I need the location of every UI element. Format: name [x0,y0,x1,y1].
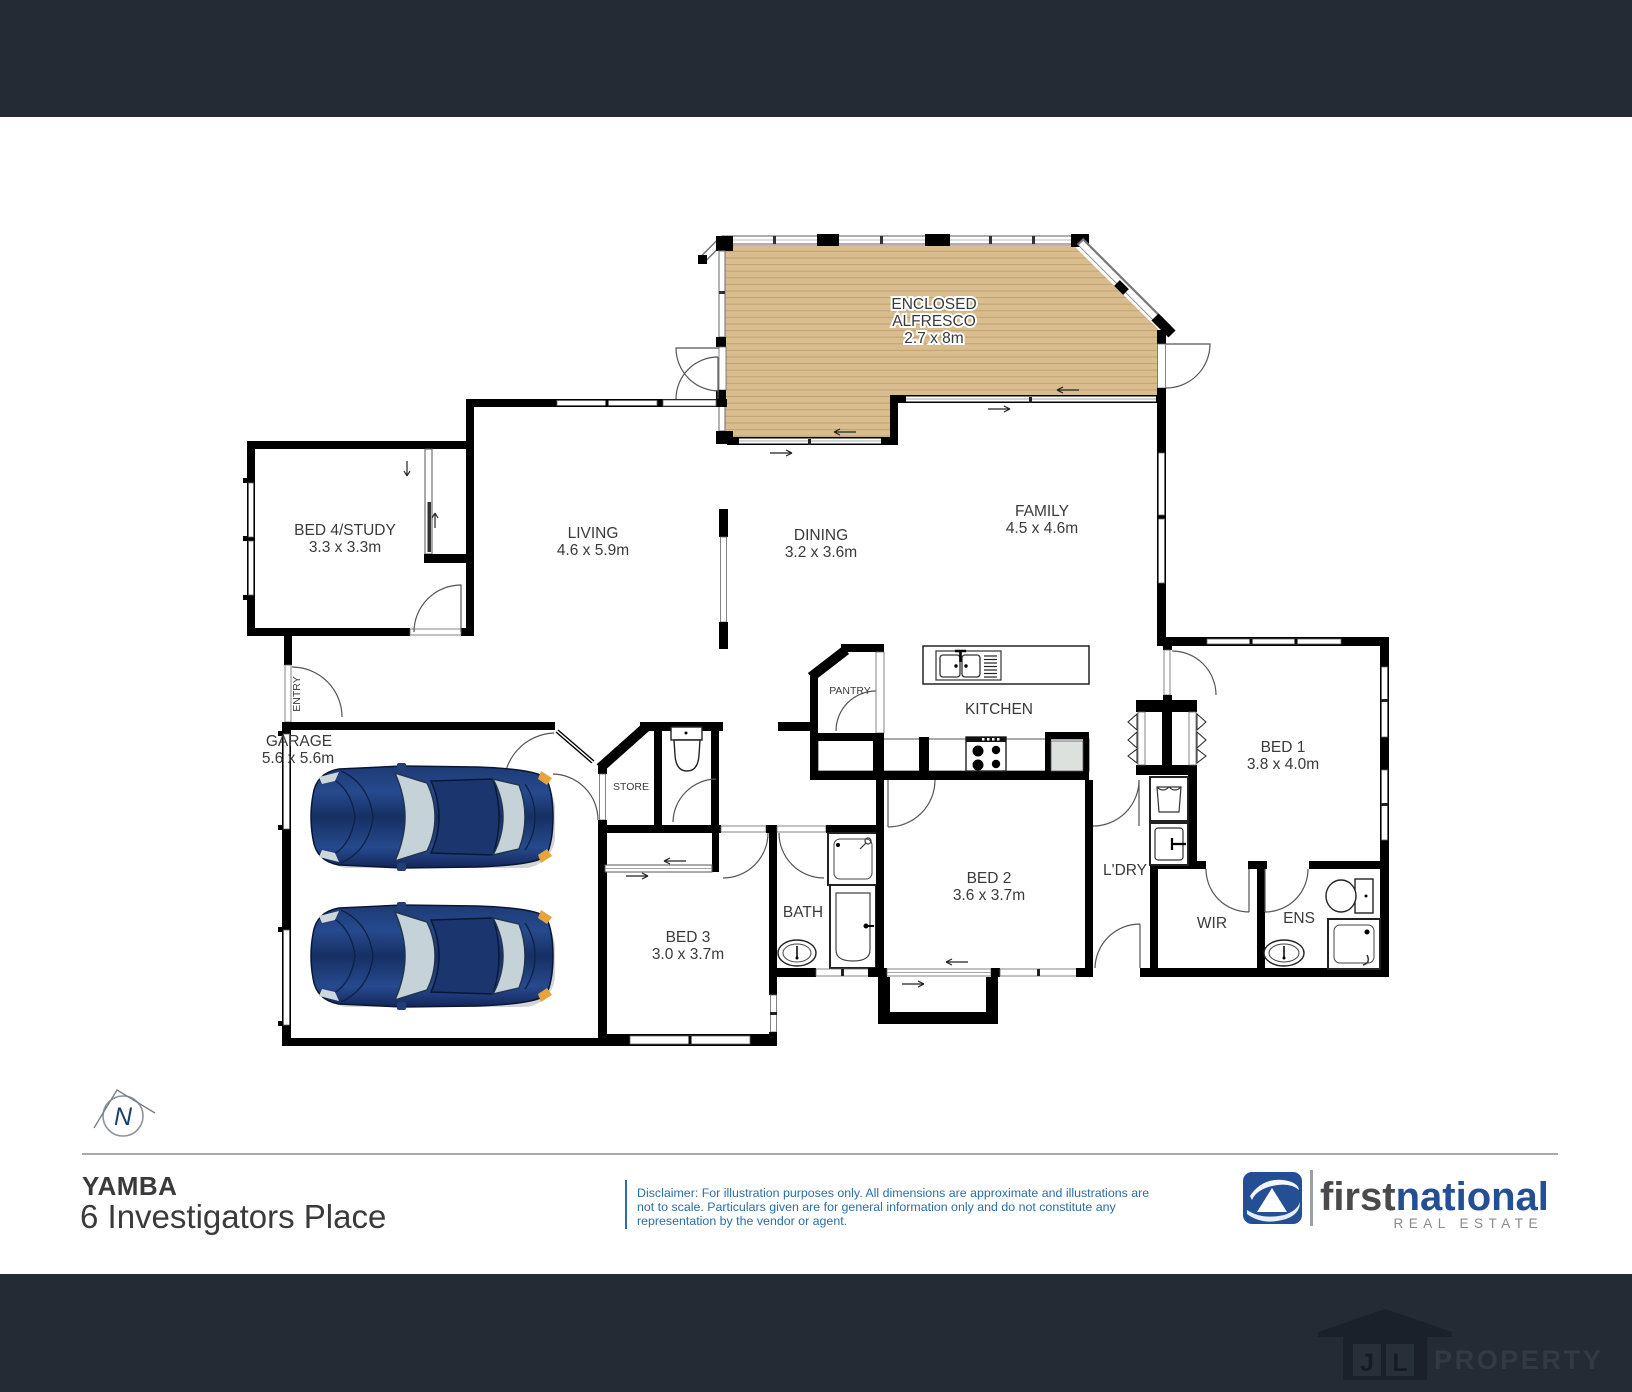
svg-text:REAL ESTATE: REAL ESTATE [1393,1216,1543,1231]
svg-text:6 Investigators Place: 6 Investigators Place [80,1198,386,1235]
svg-text:L'DRY: L'DRY [1103,862,1147,879]
svg-text:PROPERTY: PROPERTY [1434,1345,1603,1375]
svg-text:WIR: WIR [1197,915,1227,932]
svg-text:4.6 x 5.9m: 4.6 x 5.9m [557,542,629,559]
svg-text:STORE: STORE [613,781,649,793]
svg-text:firstnational: firstnational [1320,1175,1549,1219]
svg-text:FAMILY: FAMILY [1015,503,1069,520]
svg-text:5.6 x 5.6m: 5.6 x 5.6m [262,750,334,767]
svg-text:3.3 x 3.3m: 3.3 x 3.3m [309,539,381,556]
svg-text:L: L [1392,1349,1407,1377]
svg-text:2.7 x 8m: 2.7 x 8m [904,330,963,347]
svg-text:BED 1: BED 1 [1261,739,1306,756]
svg-text:BED 4/STUDY: BED 4/STUDY [294,522,396,539]
svg-text:representation by the vendor o: representation by the vendor or agent. [637,1214,847,1228]
svg-text:4.5 x 4.6m: 4.5 x 4.6m [1006,520,1078,537]
svg-text:3.6 x 3.7m: 3.6 x 3.7m [953,887,1025,904]
svg-text:KITCHEN: KITCHEN [965,701,1033,718]
svg-text:PANTRY: PANTRY [829,685,871,697]
svg-text:3.8 x 4.0m: 3.8 x 4.0m [1247,756,1319,773]
svg-text:BED 2: BED 2 [967,870,1012,887]
svg-text:LIVING: LIVING [568,525,619,542]
svg-text:Disclaimer: For illustration p: Disclaimer: For illustration purposes on… [637,1186,1149,1200]
svg-text:ENTRY: ENTRY [291,676,303,711]
svg-text:3.2 x 3.6m: 3.2 x 3.6m [785,544,857,561]
svg-text:N: N [114,1103,133,1131]
svg-text:not to scale. Particulars give: not to scale. Particulars given are for … [637,1200,1116,1214]
svg-text:GARAGE: GARAGE [266,733,332,750]
svg-text:DINING: DINING [794,527,848,544]
svg-text:J: J [1360,1349,1374,1377]
svg-text:ENCLOSED: ENCLOSED [891,296,976,313]
svg-text:BED 3: BED 3 [666,929,711,946]
svg-text:ENS: ENS [1283,910,1315,927]
svg-text:3.0 x 3.7m: 3.0 x 3.7m [652,946,724,963]
svg-text:BATH: BATH [783,904,823,921]
svg-text:ALFRESCO: ALFRESCO [892,313,976,330]
svg-text:YAMBA: YAMBA [82,1171,177,1201]
